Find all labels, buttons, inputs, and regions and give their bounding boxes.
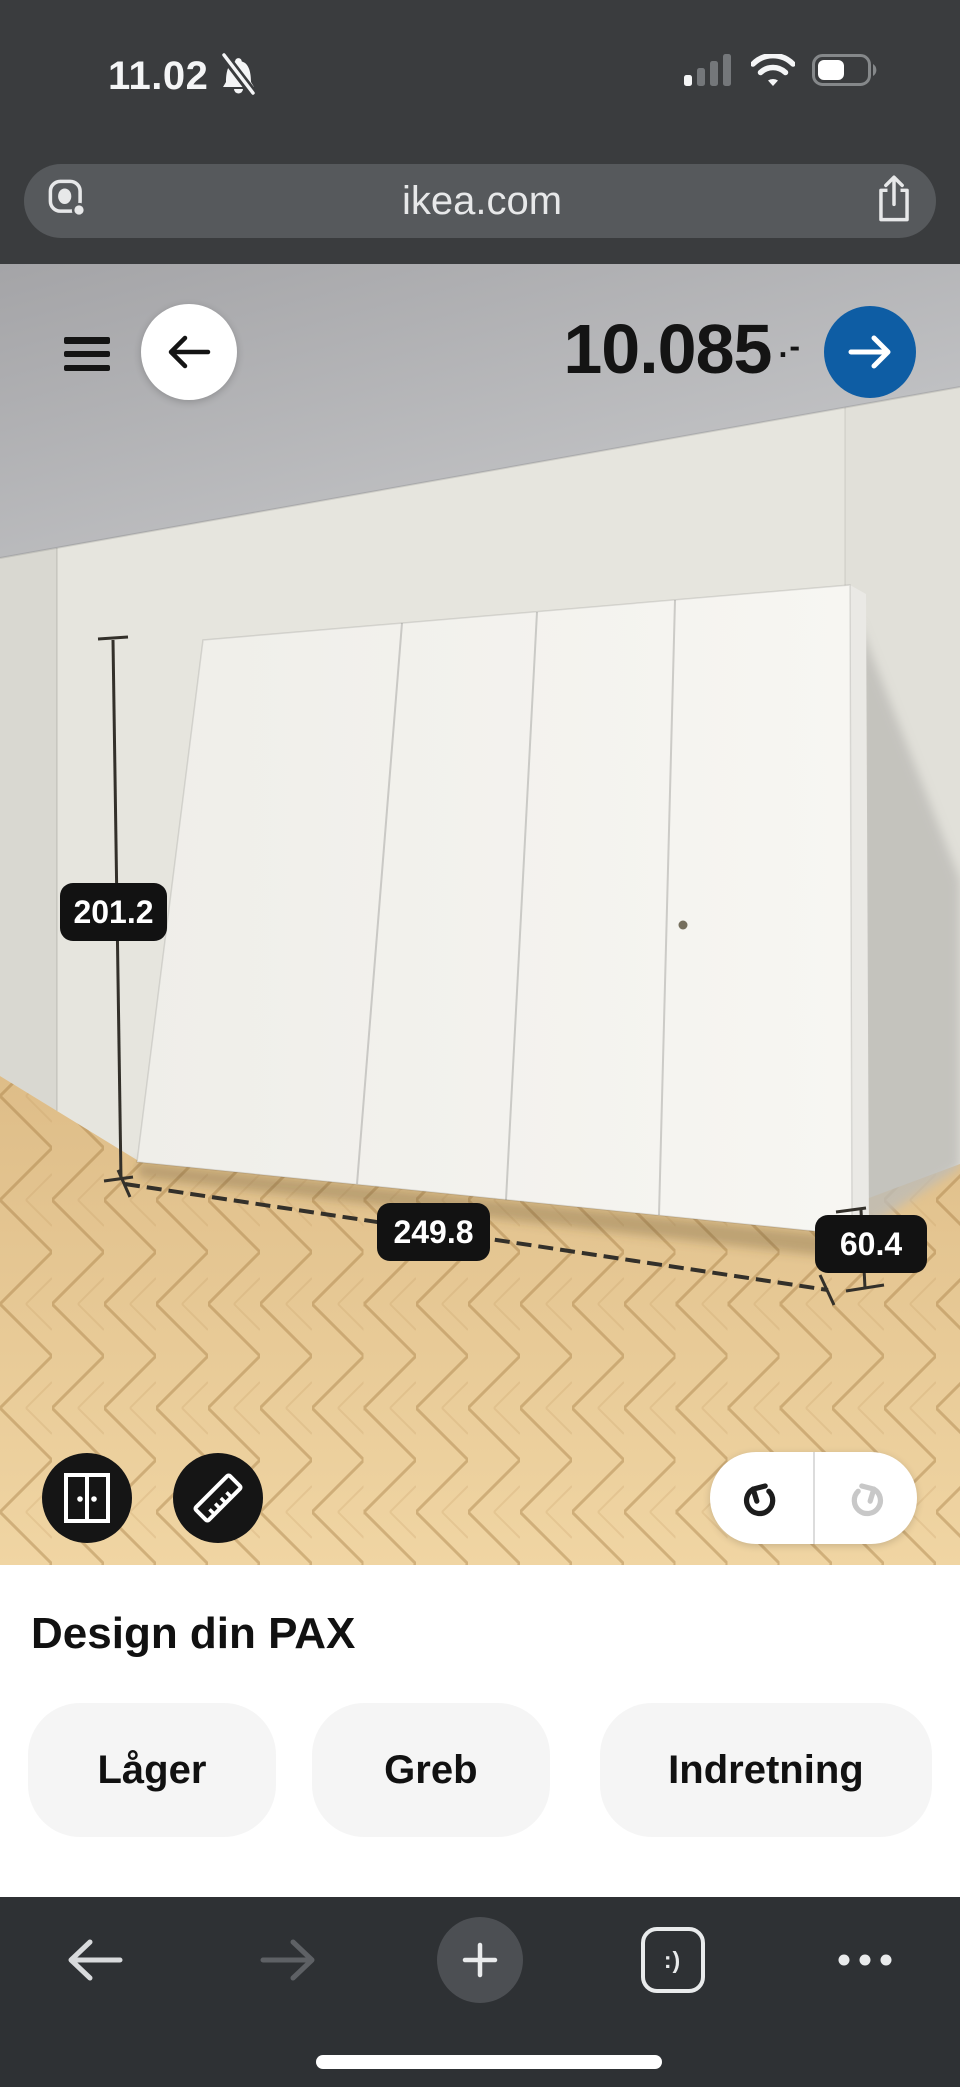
plus-icon xyxy=(437,1917,523,2003)
status-bar: 11.02 xyxy=(0,0,960,115)
browser-top-chrome: 11.02 xyxy=(0,0,960,264)
redo-button[interactable] xyxy=(815,1452,918,1544)
doors-option-label: Låger xyxy=(97,1748,206,1793)
interior-option-label: Indretning xyxy=(668,1748,864,1793)
ruler-icon xyxy=(190,1470,246,1526)
back-button[interactable] xyxy=(141,304,237,400)
browser-back-button[interactable] xyxy=(40,1905,150,2015)
total-price: 10.085 .- xyxy=(563,314,802,384)
svg-text:249.8: 249.8 xyxy=(393,1214,473,1250)
pax-wardrobe[interactable] xyxy=(137,585,869,1238)
undo-redo-group xyxy=(710,1452,917,1544)
doors-option-button[interactable]: Låger xyxy=(28,1703,276,1837)
url-bar[interactable]: ikea.com xyxy=(24,164,936,238)
more-dots-icon xyxy=(837,1953,893,1967)
wardrobe-doors-tool-button[interactable] xyxy=(42,1453,132,1543)
phone-screen: 11.02 xyxy=(0,0,960,2087)
door-knob xyxy=(679,921,688,930)
dimension-label-height[interactable]: 201.2 xyxy=(60,883,167,941)
tab-count-label: :) xyxy=(664,1947,681,1974)
dimension-label-depth[interactable]: 60.4 xyxy=(815,1215,927,1273)
share-icon[interactable] xyxy=(874,174,914,229)
cellular-signal-icon xyxy=(684,54,734,91)
nav-forward-icon xyxy=(259,1937,317,1983)
svg-text:201.2: 201.2 xyxy=(73,894,153,930)
wifi-icon xyxy=(751,54,795,91)
arrow-right-icon xyxy=(847,333,893,371)
tab-switcher-icon: :) xyxy=(641,1927,705,1993)
price-value: 10.085 xyxy=(563,314,771,384)
undo-button[interactable] xyxy=(710,1452,813,1544)
handles-option-label: Greb xyxy=(384,1748,477,1793)
lens-camera-icon[interactable] xyxy=(46,177,90,226)
measure-tool-button[interactable] xyxy=(173,1453,263,1543)
section-title: Design din PAX xyxy=(0,1565,960,1659)
handles-option-button[interactable]: Greb xyxy=(312,1703,550,1837)
notifications-muted-icon xyxy=(218,52,258,101)
svg-text:60.4: 60.4 xyxy=(840,1226,902,1262)
left-wall xyxy=(0,548,57,1111)
wardrobe-doors-icon xyxy=(63,1472,111,1524)
status-time: 11.02 xyxy=(108,54,208,99)
design-section: Design din PAX Låger Greb Indretning xyxy=(0,1565,960,1897)
undo-icon xyxy=(738,1475,784,1521)
more-menu-button[interactable] xyxy=(810,1905,920,2015)
redo-icon xyxy=(843,1475,889,1521)
battery-icon xyxy=(812,54,878,91)
tab-switcher-button[interactable]: :) xyxy=(618,1905,728,2015)
browser-forward-button[interactable] xyxy=(233,1905,343,2015)
url-text[interactable]: ikea.com xyxy=(90,179,874,224)
continue-button[interactable] xyxy=(824,306,916,398)
design-options: Låger Greb Indretning xyxy=(28,1703,932,1837)
browser-bottom-bar: :) xyxy=(0,1897,960,2087)
new-tab-button[interactable] xyxy=(425,1905,535,2015)
interior-option-button[interactable]: Indretning xyxy=(600,1703,932,1837)
price-suffix: .- xyxy=(778,328,802,365)
dimension-label-width[interactable]: 249.8 xyxy=(377,1203,490,1261)
menu-icon[interactable] xyxy=(64,337,110,371)
room-render: 201.2 249.8 60.4 xyxy=(0,264,960,1565)
home-indicator[interactable] xyxy=(316,2055,662,2069)
arrow-left-icon xyxy=(166,333,212,371)
nav-back-icon xyxy=(66,1937,124,1983)
planner-3d-viewport[interactable]: 201.2 249.8 60.4 10.085 .- xyxy=(0,264,960,1565)
